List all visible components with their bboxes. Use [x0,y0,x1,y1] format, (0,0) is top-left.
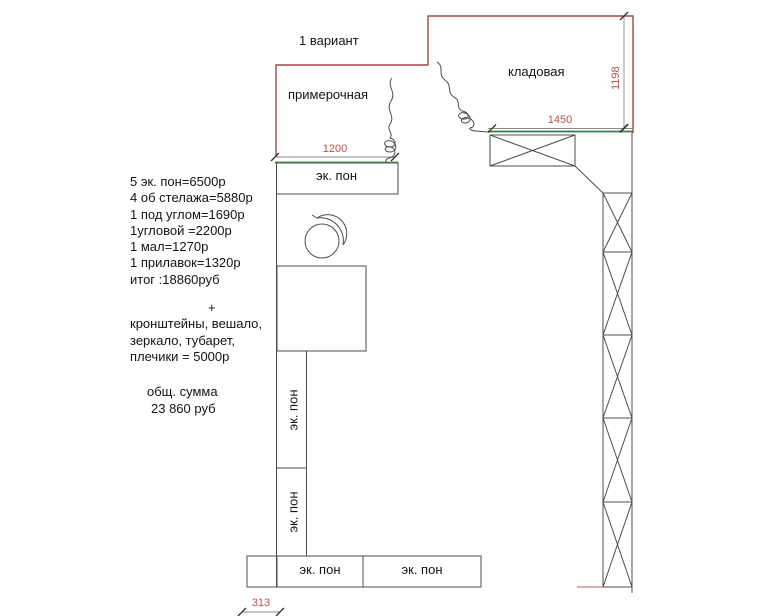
estimate-total-value: 23 860 руб [130,401,262,417]
room-label-fitting: примерочная [288,87,368,102]
connector-line [575,166,603,193]
storage-crossed-box [490,135,575,166]
dim-label-313: 313 [239,597,283,609]
page-title: 1 вариант [299,33,359,48]
estimate-item: итог :18860руб [130,272,262,288]
room-label-storage: кладовая [508,64,565,79]
curtain-squiggle-storage [437,62,488,132]
estimate-extra: кронштейны, вешало, [130,316,262,332]
eco-panel-label-top: эк. пон [275,168,398,183]
estimate-item: 1 мал=1270р [130,239,262,255]
dim-label-1450: 1450 [530,114,590,126]
curtain-squiggle-fitting [385,78,396,163]
estimate-item: 4 об стелажа=5880р [130,190,262,206]
estimate-item: 1угловой =2200р [130,223,262,239]
estimate-item: 1 прилавок=1320р [130,255,262,271]
estimate-plus-sign: + [130,300,262,316]
estimate-item: 5 эк. пон=6500р [130,174,262,190]
counter-rectangle [277,266,366,351]
rotation-arrow-crescent [312,215,347,245]
estimate-extra: зеркало, тубарет, [130,333,262,349]
plan-canvas [0,0,770,616]
dim-label-1200: 1200 [305,143,365,155]
truss-column [603,131,632,593]
estimate-list: 5 эк. пон=6500р 4 об стелажа=5880р 1 под… [130,174,262,417]
estimate-extra: плечики = 5000р [130,349,262,365]
eco-panel-label-bottom-1: эк. пон [277,562,363,577]
estimate-total-caption: общ. сумма [130,384,262,400]
round-rack-circle [305,224,339,258]
dim-label-1198: 1198 [610,66,622,90]
floor-plan-drawing: 1 вариант примерочная кладовая 1200 1450… [0,0,770,616]
estimate-item: 1 под углом=1690р [130,207,262,223]
eco-panel-label-bottom-2: эк. пон [363,562,481,577]
